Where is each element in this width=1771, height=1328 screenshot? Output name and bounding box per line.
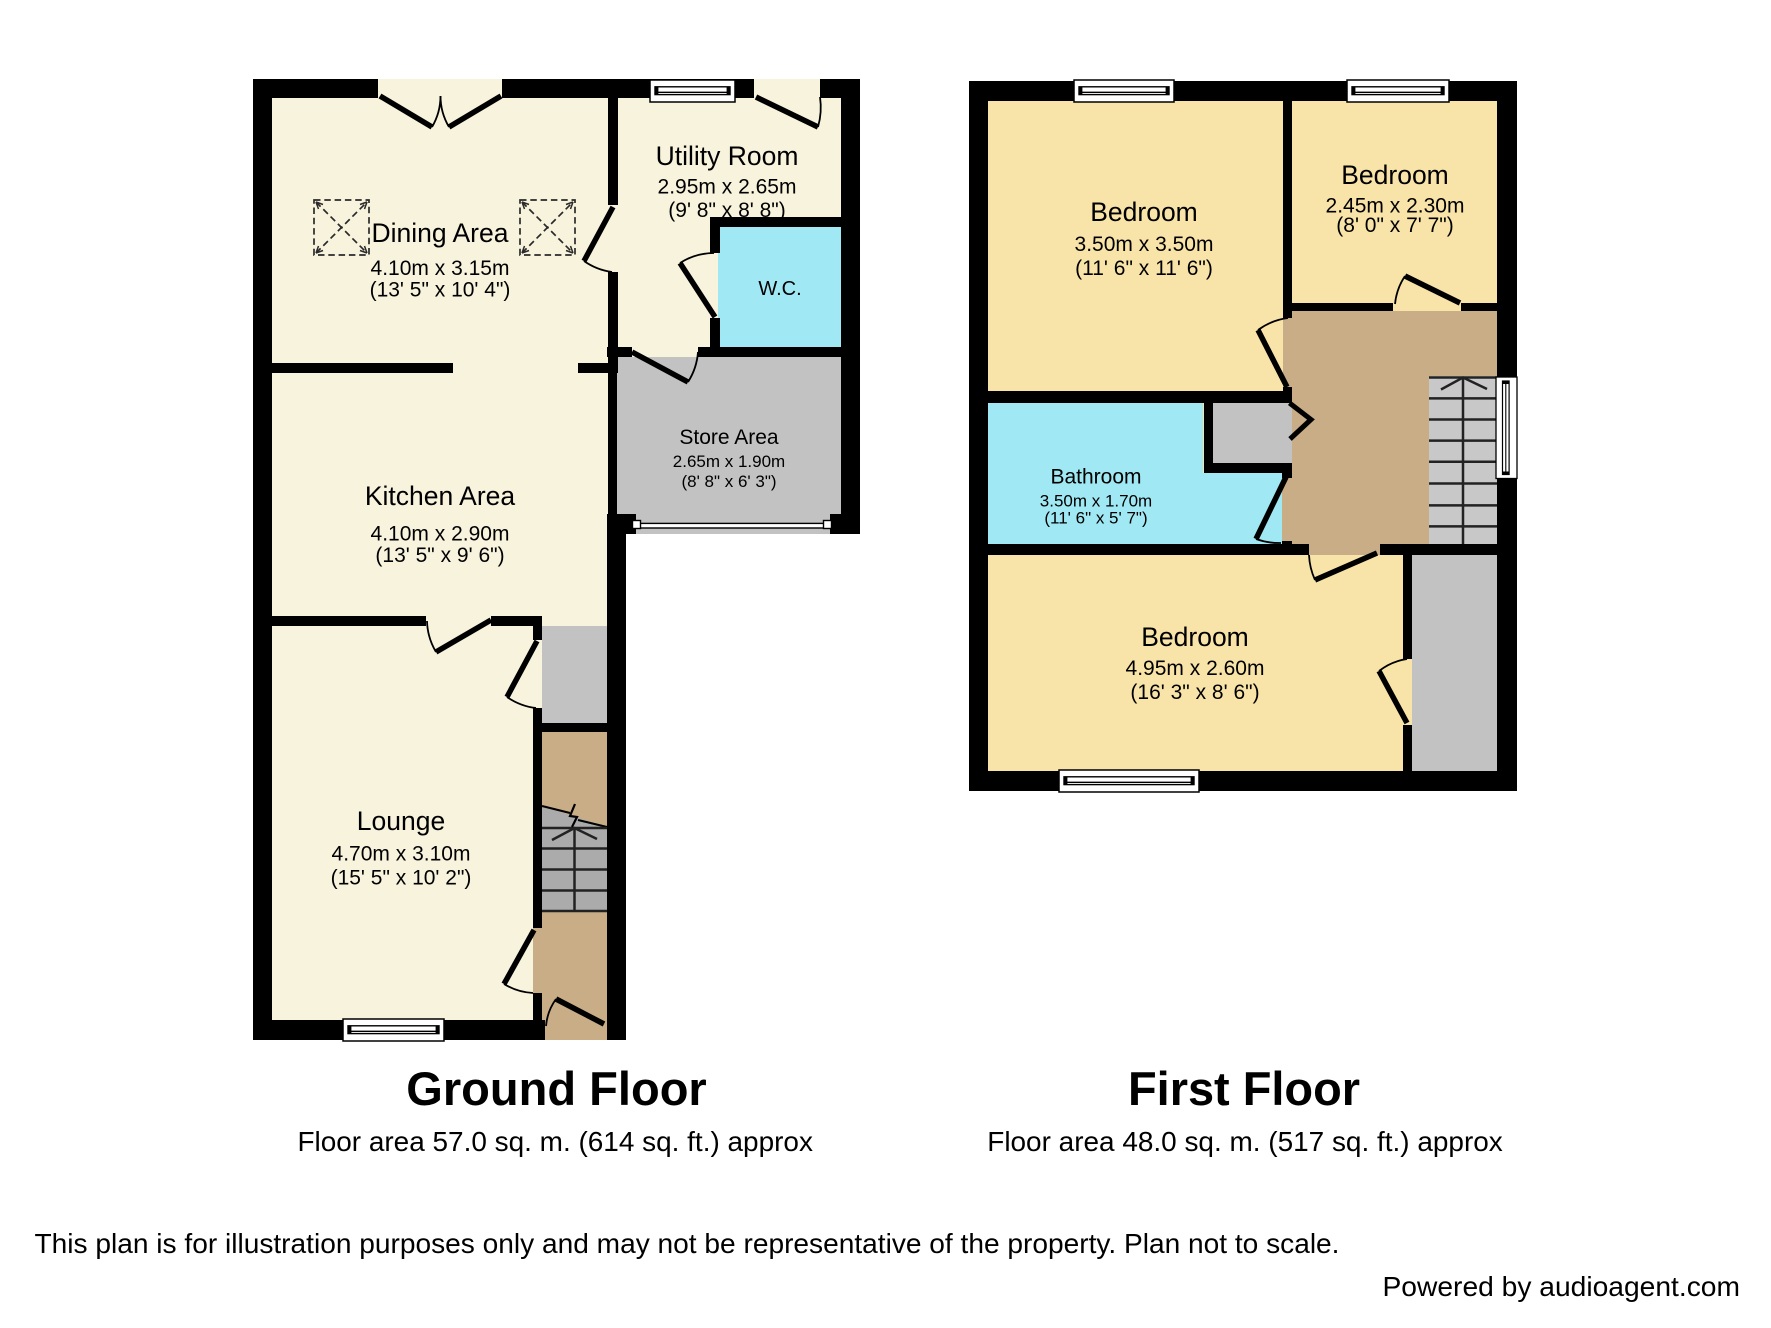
svg-text:(8' 8" x 6' 3"): (8' 8" x 6' 3") <box>681 472 776 491</box>
svg-text:Bedroom: Bedroom <box>1141 622 1249 652</box>
svg-text:(11' 6" x 11' 6"): (11' 6" x 11' 6") <box>1075 257 1213 280</box>
svg-text:3.50m x 3.50m: 3.50m x 3.50m <box>1075 233 1214 256</box>
svg-text:Dining Area: Dining Area <box>371 218 508 248</box>
svg-text:Powered by audioagent.com: Powered by audioagent.com <box>1383 1271 1741 1302</box>
svg-text:Lounge: Lounge <box>357 806 445 836</box>
svg-text:Bathroom: Bathroom <box>1050 466 1141 489</box>
svg-text:(8' 0" x 7' 7"): (8' 0" x 7' 7") <box>1336 214 1453 237</box>
svg-text:Store Area: Store Area <box>679 426 779 449</box>
svg-text:This plan is for illustration: This plan is for illustration purposes o… <box>35 1228 1340 1259</box>
svg-text:(13' 5" x 10' 4"): (13' 5" x 10' 4") <box>370 279 511 302</box>
svg-text:(16' 3" x 8' 6"): (16' 3" x 8' 6") <box>1130 681 1259 704</box>
svg-text:2.95m x 2.65m: 2.95m x 2.65m <box>658 176 797 199</box>
svg-text:Kitchen Area: Kitchen Area <box>365 481 516 511</box>
svg-text:4.70m x 3.10m: 4.70m x 3.10m <box>332 843 471 866</box>
svg-text:Utility Room: Utility Room <box>656 141 799 171</box>
svg-text:Bedroom: Bedroom <box>1341 160 1449 190</box>
svg-text:(15' 5" x 10' 2"): (15' 5" x 10' 2") <box>331 867 472 890</box>
svg-text:W.C.: W.C. <box>758 278 801 300</box>
svg-text:(9' 8" x 8' 8"): (9' 8" x 8' 8") <box>668 199 785 222</box>
svg-text:4.10m x 3.15m: 4.10m x 3.15m <box>371 257 510 280</box>
svg-text:Floor area 48.0 sq. m. (517 sq: Floor area 48.0 sq. m. (517 sq. ft.) app… <box>987 1126 1503 1157</box>
svg-text:First Floor: First Floor <box>1128 1062 1360 1115</box>
svg-text:(13' 5" x 9' 6"): (13' 5" x 9' 6") <box>375 544 504 567</box>
svg-text:2.65m x 1.90m: 2.65m x 1.90m <box>673 452 785 471</box>
svg-text:Ground Floor: Ground Floor <box>406 1062 707 1115</box>
svg-text:4.10m x 2.90m: 4.10m x 2.90m <box>371 523 510 546</box>
svg-text:Floor area 57.0 sq. m. (614 sq: Floor area 57.0 sq. m. (614 sq. ft.) app… <box>297 1126 813 1157</box>
svg-text:4.95m x 2.60m: 4.95m x 2.60m <box>1126 657 1265 680</box>
svg-text:Bedroom: Bedroom <box>1090 197 1198 227</box>
svg-text:(11' 6" x 5' 7"): (11' 6" x 5' 7") <box>1044 509 1147 528</box>
